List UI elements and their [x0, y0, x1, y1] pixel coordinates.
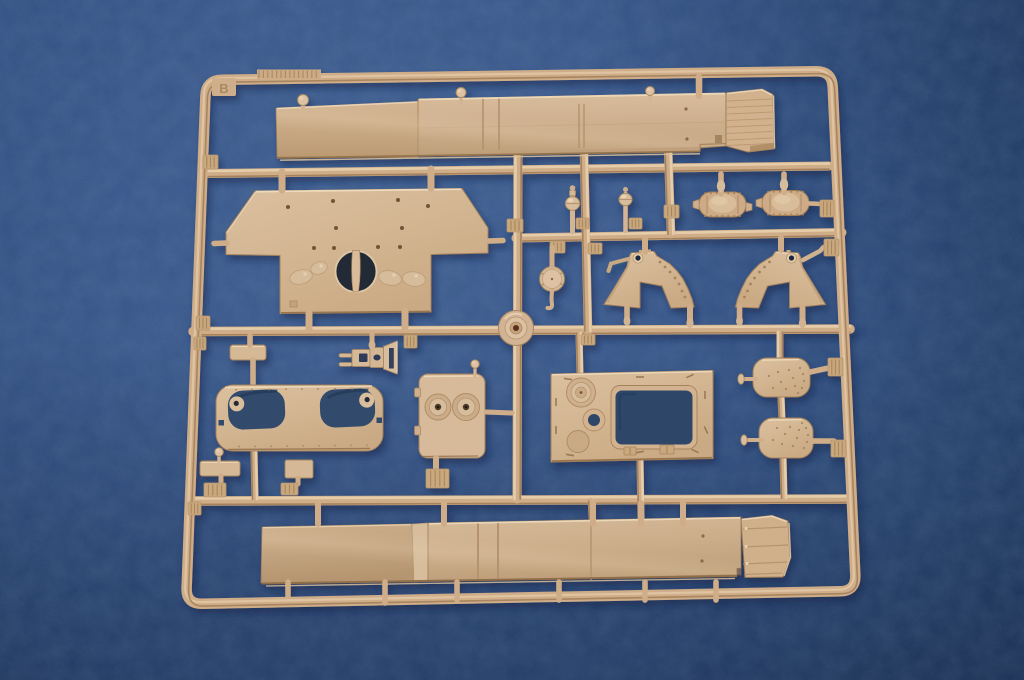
svg-text:B: B [219, 81, 228, 96]
